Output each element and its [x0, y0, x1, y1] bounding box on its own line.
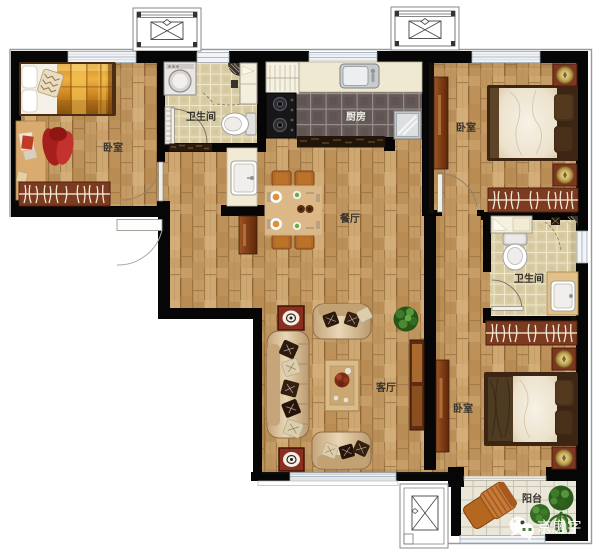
svg-text:卧室: 卧室 — [103, 141, 123, 154]
svg-text:客厅: 客厅 — [375, 381, 396, 394]
svg-text:餐厅: 餐厅 — [339, 212, 360, 225]
svg-text:卧室: 卧室 — [456, 121, 476, 134]
svg-text:卫生间: 卫生间 — [514, 272, 544, 285]
svg-text:卧室: 卧室 — [453, 402, 473, 415]
svg-text:阳台: 阳台 — [522, 492, 542, 505]
svg-text:京房字: 京房字 — [537, 519, 582, 536]
svg-text:厨房: 厨房 — [346, 110, 366, 123]
svg-text:卫生间: 卫生间 — [186, 110, 216, 123]
